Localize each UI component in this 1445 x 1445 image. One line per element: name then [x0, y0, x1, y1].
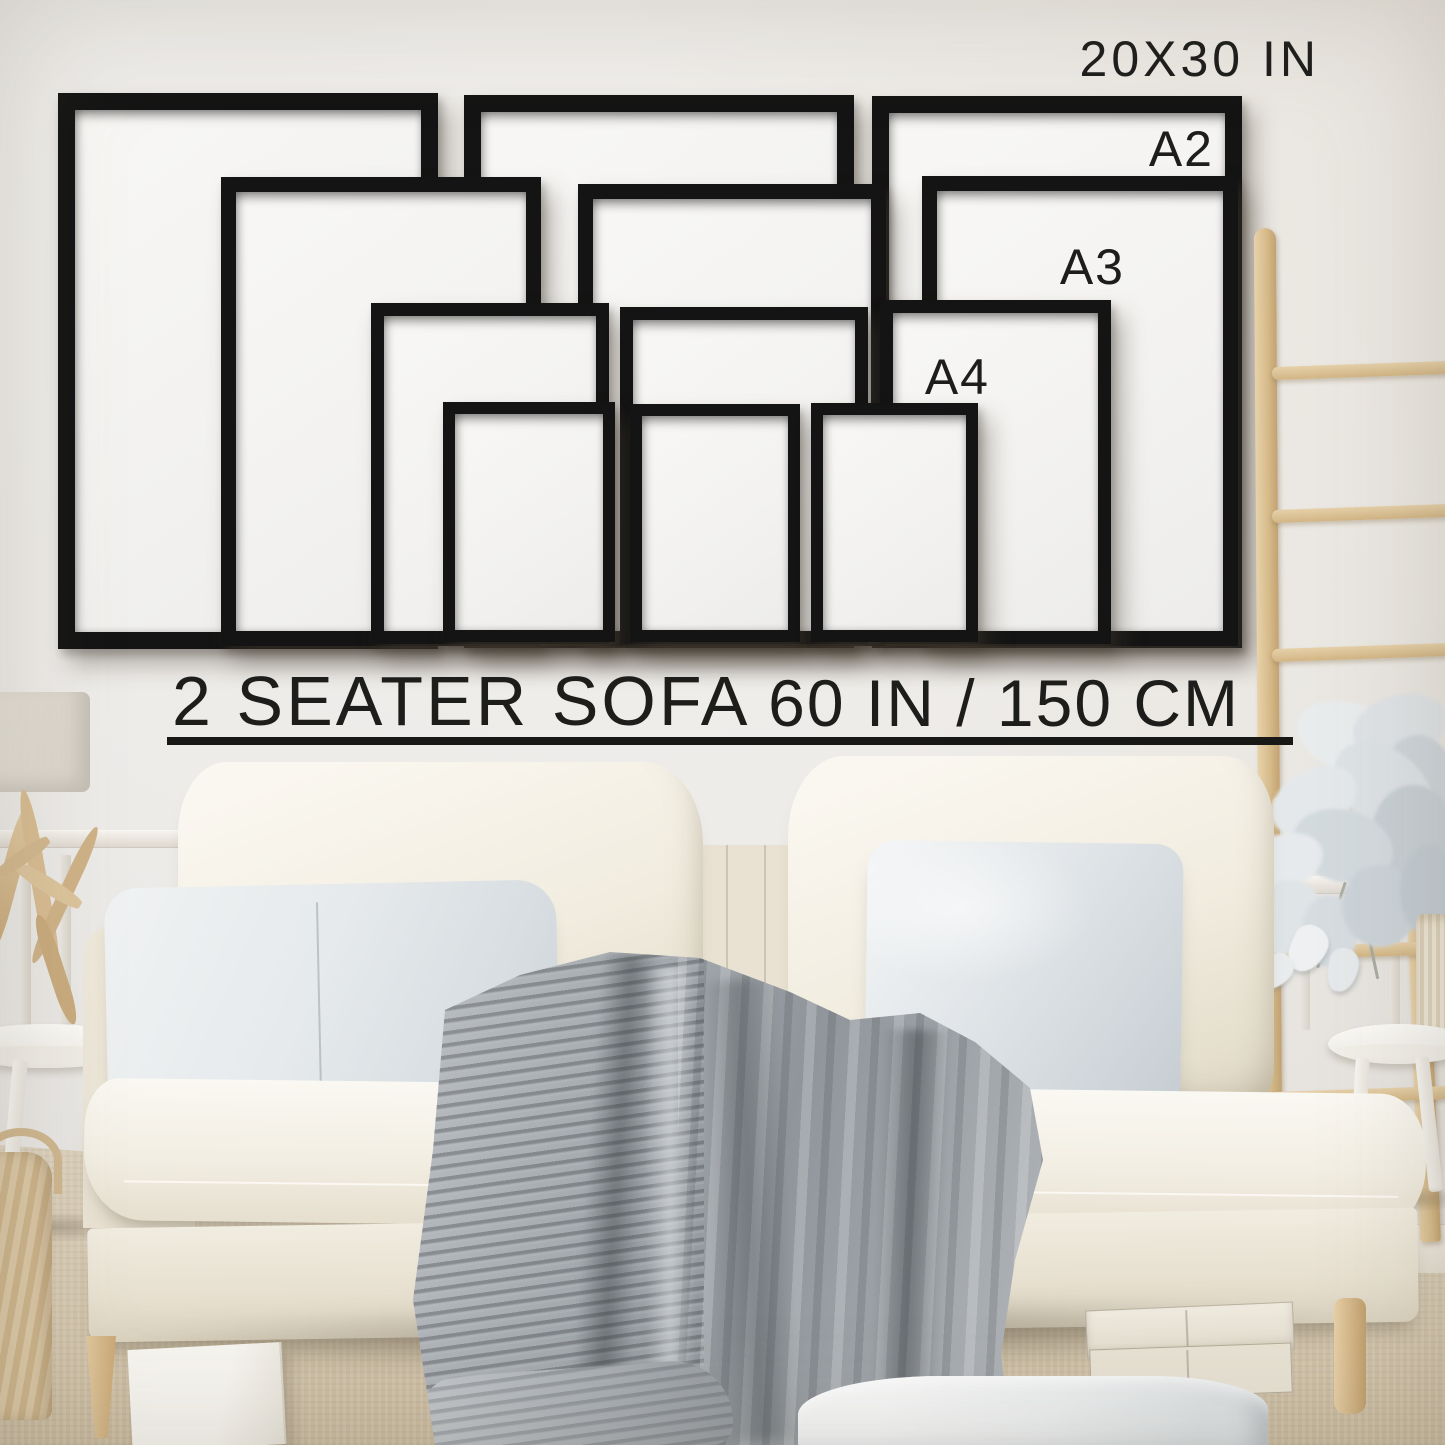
- label-sofa-width: 60 IN / 150 CM: [768, 670, 1240, 736]
- frame-a4-middle: [630, 404, 800, 642]
- frame-mat: [642, 416, 788, 630]
- label-largest-size: 20X30 IN: [1080, 34, 1320, 84]
- wainscot-stile: [21, 858, 31, 1034]
- frame-mat: [455, 414, 603, 630]
- floor-pillow: [798, 1376, 1268, 1445]
- label-a4: A4: [925, 352, 990, 402]
- frame-a4-left: [443, 402, 615, 642]
- label-a3: A3: [1060, 242, 1125, 292]
- storage-box-left: [127, 1342, 286, 1445]
- sofa-width-underline: [167, 737, 1293, 745]
- frame-mat: [823, 415, 966, 630]
- blanket-fold-shadow: [868, 1029, 952, 1431]
- lamp-shade: [0, 692, 90, 792]
- label-a2: A2: [1149, 124, 1214, 174]
- basket: [0, 1152, 52, 1420]
- sofa-leg-right: [1334, 1298, 1366, 1414]
- size-guide-image: 20X30 IN A2 A3 A4 2 SEATER SOFA 60 IN / …: [0, 0, 1445, 1445]
- label-sofa: 2 SEATER SOFA: [172, 666, 750, 736]
- frame-a4-right: [811, 403, 978, 642]
